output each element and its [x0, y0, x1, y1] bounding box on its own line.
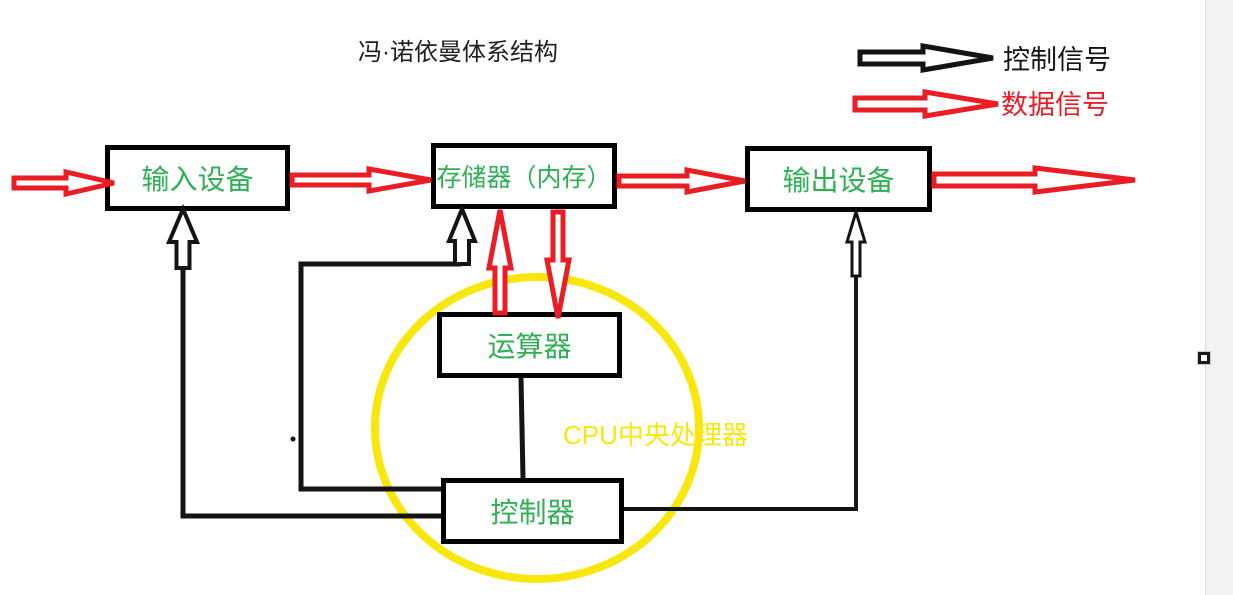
box-output-device: 输出设备: [745, 146, 932, 212]
line-cu-to-memory: [301, 264, 459, 489]
line-cu-to-output: [624, 276, 856, 509]
box-label-control-unit: 控制器: [490, 491, 574, 531]
arrow-memory-to-output: [619, 170, 745, 192]
line-alu-to-cu: [521, 378, 523, 478]
arrow-external-to-input: [14, 172, 114, 194]
arrow-input-to-memory: [292, 169, 431, 191]
box-alu: 运算器: [437, 312, 622, 378]
box-input-device: 输入设备: [105, 145, 290, 211]
arrow-cu-to-memory: [449, 209, 475, 264]
legend-label-data-signal: 数据信号: [1001, 91, 1109, 121]
paint-canvas[interactable]: 冯·诺依曼体系结构 控制信号 数据信号 输入设备 存储器（内存） 输出设备 运算…: [0, 0, 1233, 595]
legend-data-arrow-icon: [855, 92, 998, 116]
line-cu-to-input: [183, 266, 441, 516]
cpu-region-label: CPU中央处理器: [563, 421, 748, 450]
box-memory: 存储器（内存）: [431, 143, 617, 209]
box-label-alu: 运算器: [487, 325, 571, 365]
arrow-output-to-external: [934, 168, 1135, 192]
stray-pen-dot: [291, 437, 296, 442]
arrow-memory-to-alu: [547, 212, 569, 318]
side-panel: [1205, 0, 1233, 595]
diagram-title: 冯·诺依曼体系结构: [358, 40, 558, 66]
arrow-cu-to-input: [169, 209, 197, 268]
arrow-cu-to-output: [847, 212, 865, 276]
legend-control-arrow-icon: [860, 46, 993, 70]
arrow-alu-to-memory: [489, 210, 511, 313]
canvas-resize-handle[interactable]: [1198, 352, 1210, 364]
box-label-memory: 存储器（内存）: [436, 158, 611, 194]
box-label-input-device: 输入设备: [141, 158, 253, 198]
box-control-unit: 控制器: [441, 478, 624, 544]
legend-label-control-signal: 控制信号: [1003, 46, 1111, 76]
box-label-output-device: 输出设备: [782, 159, 894, 199]
